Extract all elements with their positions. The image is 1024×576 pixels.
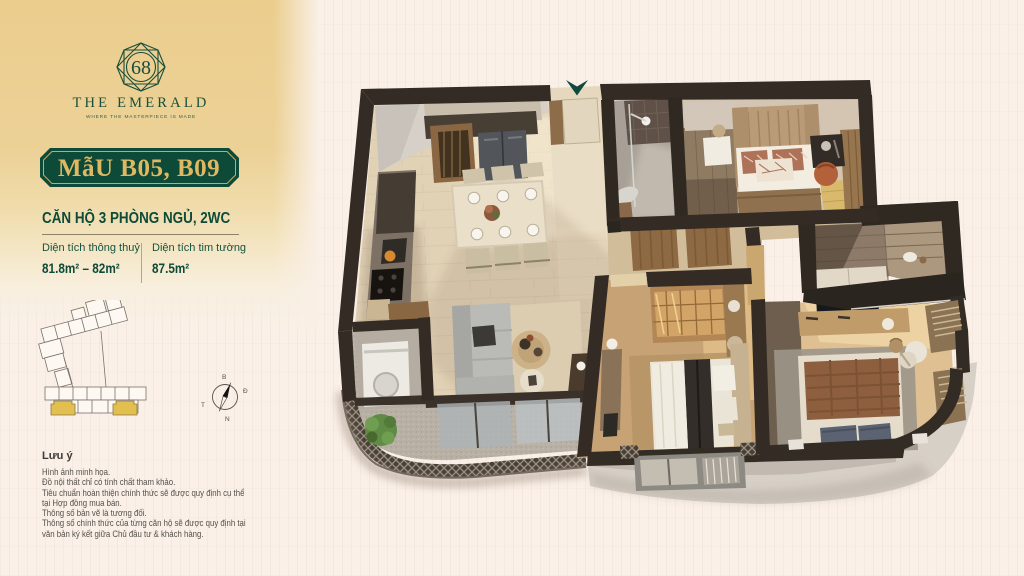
svg-text:B: B — [222, 374, 226, 381]
svg-text:N: N — [225, 416, 230, 422]
svg-text:68: 68 — [131, 57, 151, 79]
svg-text:MẫU B05, B09: MẫU B05, B09 — [58, 155, 220, 182]
svg-text:THE EMERALD: THE EMERALD — [72, 95, 209, 111]
svg-text:Đ: Đ — [243, 388, 248, 395]
svg-text:WHERE THE MASTERPIECE IS MADE: WHERE THE MASTERPIECE IS MADE — [86, 114, 196, 120]
svg-text:T: T — [201, 402, 205, 409]
